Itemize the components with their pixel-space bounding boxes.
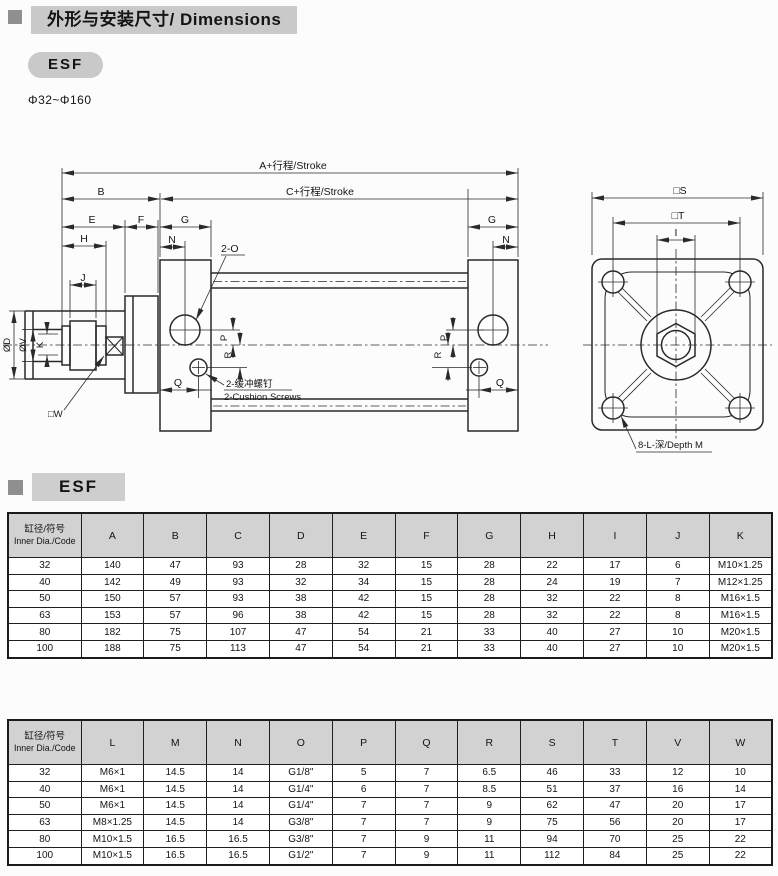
- dimension-cell: 10: [646, 640, 709, 657]
- dimension-cell: 20: [646, 798, 709, 815]
- dimension-cell: 33: [584, 765, 647, 782]
- table-row: 40M6×114.514G1/4"678.551371614: [8, 781, 772, 798]
- dimension-cell: 7: [332, 798, 395, 815]
- bore-code-cell: 100: [8, 847, 81, 864]
- column-header: G: [458, 513, 521, 558]
- dimension-cell: 62: [521, 798, 584, 815]
- dimension-cell: 7: [332, 831, 395, 848]
- dim-label-h: H: [80, 233, 88, 245]
- dimension-cell: M6×1: [81, 765, 144, 782]
- dim-label-b: B: [97, 186, 104, 198]
- mounting-flange: [125, 296, 158, 393]
- bore-code-header-en: Inner Dia./Code: [9, 743, 81, 754]
- dimension-cell: 93: [207, 558, 270, 575]
- column-header: C: [207, 513, 270, 558]
- technical-drawing: A+行程/Stroke C+行程/Stroke B E F G G H N N …: [0, 140, 778, 475]
- dim-label-phi-d: ØD: [2, 338, 13, 352]
- table-row: 3214047932832152822176M10×1.25: [8, 558, 772, 575]
- dimension-cell: 5: [332, 765, 395, 782]
- dimension-cell: 10: [709, 765, 772, 782]
- dimension-cell: 7: [332, 847, 395, 864]
- dimension-cell: 33: [458, 640, 521, 657]
- dimension-cell: M10×1.25: [709, 558, 772, 575]
- dimension-cell: 113: [207, 640, 270, 657]
- dimension-cell: 14: [207, 765, 270, 782]
- dimension-cell: 25: [646, 831, 709, 848]
- rod-collar: [70, 321, 96, 370]
- dimension-cell: 94: [521, 831, 584, 848]
- bore-code-cell: 40: [8, 574, 81, 591]
- dimension-cell: M10×1.5: [81, 847, 144, 864]
- dimension-cell: 47: [269, 640, 332, 657]
- dimension-cell: M20×1.5: [709, 640, 772, 657]
- dimension-cell: 6: [646, 558, 709, 575]
- dimension-cell: 27: [584, 640, 647, 657]
- dimension-cell: 11: [458, 831, 521, 848]
- dimension-cell: 46: [521, 765, 584, 782]
- dimension-cell: 84: [584, 847, 647, 864]
- dimension-cell: M16×1.5: [709, 607, 772, 624]
- dimension-cell: 9: [458, 798, 521, 815]
- dimension-cell: 42: [332, 591, 395, 608]
- table-row: 1001887511347542133402710M20×1.5: [8, 640, 772, 657]
- dimension-cell: 96: [207, 607, 270, 624]
- dimension-cell: M12×1.25: [709, 574, 772, 591]
- depth-note-label: 8-L-深/Depth M: [638, 440, 703, 451]
- dimension-cell: 32: [521, 607, 584, 624]
- table-header-row: 缸径/符号 Inner Dia./Code LMNOPQRSTVW: [8, 720, 772, 765]
- table-row: 6315357963842152832228M16×1.5: [8, 607, 772, 624]
- page-title: 外形与安装尺寸/ Dimensions: [31, 6, 297, 34]
- dimension-cell: 15: [395, 558, 458, 575]
- dimension-cell: 15: [395, 574, 458, 591]
- bore-code-cell: 80: [8, 624, 81, 641]
- bore-code-cell: 63: [8, 607, 81, 624]
- column-header: D: [269, 513, 332, 558]
- table-row: 801827510747542133402710M20×1.5: [8, 624, 772, 641]
- dim-label-f: F: [138, 214, 144, 226]
- dimension-cell: 150: [81, 591, 144, 608]
- series-badge: ESF: [28, 52, 103, 78]
- dimension-cell: 17: [584, 558, 647, 575]
- dimension-cell: 14.5: [144, 781, 207, 798]
- dim-label-phi-v: ØV: [18, 337, 29, 351]
- dimension-cell: 16.5: [207, 831, 270, 848]
- dimension-cell: M20×1.5: [709, 624, 772, 641]
- dimension-cell: 28: [458, 558, 521, 575]
- dim-label-q-left: Q: [174, 377, 182, 389]
- dimension-cell: 38: [269, 607, 332, 624]
- dimension-cell: 16.5: [207, 847, 270, 864]
- dimension-cell: G1/4": [269, 798, 332, 815]
- dim-label-i: I: [675, 227, 678, 239]
- column-header: R: [458, 720, 521, 765]
- dimension-cell: 22: [584, 591, 647, 608]
- dimension-cell: 14.5: [144, 765, 207, 782]
- dimension-cell: 14: [709, 781, 772, 798]
- dimension-cell: G1/2": [269, 847, 332, 864]
- cushion-label-zh: 2-缓冲螺钉: [226, 378, 273, 390]
- dim-label-p-left: P: [219, 335, 230, 341]
- dimension-cell: 75: [144, 640, 207, 657]
- dimension-cell: 21: [395, 640, 458, 657]
- dimension-cell: 7: [395, 798, 458, 815]
- dimension-cell: 182: [81, 624, 144, 641]
- column-header: S: [521, 720, 584, 765]
- dimension-cell: 14: [207, 798, 270, 815]
- dim-label-n-right: N: [502, 234, 510, 246]
- catalog-page: 外形与安装尺寸/ Dimensions ESF Φ32~Φ160: [0, 0, 778, 876]
- dimension-cell: 10: [646, 624, 709, 641]
- dimension-cell: 14.5: [144, 814, 207, 831]
- dimension-cell: 28: [269, 558, 332, 575]
- dimensions-table-l-w: 缸径/符号 Inner Dia./Code LMNOPQRSTVW 32M6×1…: [7, 719, 773, 866]
- dim-label-g-right: G: [488, 214, 496, 226]
- dimension-cell: 56: [584, 814, 647, 831]
- dimension-cell: 8: [646, 607, 709, 624]
- dimension-cell: 47: [584, 798, 647, 815]
- dimension-cell: 37: [584, 781, 647, 798]
- bore-code-header: 缸径/符号 Inner Dia./Code: [8, 513, 81, 558]
- dimension-cell: 17: [709, 814, 772, 831]
- bore-code-header-zh: 缸径/符号: [9, 524, 81, 536]
- dimension-cell: 11: [458, 847, 521, 864]
- dimension-cell: 34: [332, 574, 395, 591]
- dimension-cell: 6.5: [458, 765, 521, 782]
- dimension-cell: 28: [458, 607, 521, 624]
- dimension-cell: 54: [332, 640, 395, 657]
- dimension-cell: 17: [709, 798, 772, 815]
- dimension-cell: 93: [207, 591, 270, 608]
- dimension-cell: 14: [207, 781, 270, 798]
- side-view: A+行程/Stroke C+行程/Stroke B E F G G H N N …: [2, 159, 548, 431]
- dimension-cell: 20: [646, 814, 709, 831]
- table-row: 5015057933842152832228M16×1.5: [8, 591, 772, 608]
- column-header: E: [332, 513, 395, 558]
- dimension-cell: 7: [395, 781, 458, 798]
- section-bullet-icon: [8, 10, 22, 24]
- dimension-cell: 42: [332, 607, 395, 624]
- dimension-cell: 188: [81, 640, 144, 657]
- dimension-cell: 16: [646, 781, 709, 798]
- dimension-cell: 7: [332, 814, 395, 831]
- end-view: □S □T I 8-L-深/Depth M: [583, 185, 772, 452]
- dimension-cell: 8.5: [458, 781, 521, 798]
- dimension-cell: G3/8": [269, 814, 332, 831]
- dimension-cell: 93: [207, 574, 270, 591]
- dimension-cell: 47: [269, 624, 332, 641]
- dim-label-j: J: [80, 272, 85, 284]
- dimension-cell: 7: [395, 814, 458, 831]
- dimension-cell: 25: [646, 847, 709, 864]
- dim-label-g-left: G: [181, 214, 189, 226]
- dimension-cell: 9: [395, 831, 458, 848]
- bore-code-cell: 32: [8, 558, 81, 575]
- table-row: 50M6×114.514G1/4"77962472017: [8, 798, 772, 815]
- bore-code-cell: 50: [8, 591, 81, 608]
- bore-code-cell: 63: [8, 814, 81, 831]
- dim-label-a-stroke: A+行程/Stroke: [259, 159, 327, 172]
- dimension-cell: 16.5: [144, 831, 207, 848]
- dimension-cell: 12: [646, 765, 709, 782]
- dim-label-s: □S: [673, 185, 686, 197]
- table-row: 100M10×1.516.516.5G1/2"7911112842522: [8, 847, 772, 864]
- dimension-cell: 142: [81, 574, 144, 591]
- dimension-cell: 7: [395, 765, 458, 782]
- column-header: K: [709, 513, 772, 558]
- bore-code-cell: 32: [8, 765, 81, 782]
- dimension-cell: 49: [144, 574, 207, 591]
- bore-code-header-en: Inner Dia./Code: [9, 536, 81, 547]
- bore-range-label: Φ32~Φ160: [28, 93, 92, 107]
- dimension-cell: 33: [458, 624, 521, 641]
- dimension-cell: 32: [269, 574, 332, 591]
- dim-label-e: E: [88, 214, 95, 226]
- column-header: I: [584, 513, 647, 558]
- dimension-cell: 22: [709, 847, 772, 864]
- dimension-cell: 107: [207, 624, 270, 641]
- bore-code-header: 缸径/符号 Inner Dia./Code: [8, 720, 81, 765]
- section-bullet-icon: [8, 480, 23, 495]
- page-header: 外形与安装尺寸/ Dimensions: [8, 6, 297, 34]
- dimension-cell: 40: [521, 640, 584, 657]
- column-header: W: [709, 720, 772, 765]
- dimension-cell: 15: [395, 607, 458, 624]
- dimension-cell: 9: [395, 847, 458, 864]
- dimension-cell: M6×1: [81, 798, 144, 815]
- dim-label-r-right: R: [433, 351, 444, 358]
- dimension-cell: 14: [207, 814, 270, 831]
- table-row: 32M6×114.514G1/8"576.546331210: [8, 765, 772, 782]
- column-header: M: [144, 720, 207, 765]
- dimension-cell: 15: [395, 591, 458, 608]
- dimension-cell: G3/8": [269, 831, 332, 848]
- dimension-cell: 21: [395, 624, 458, 641]
- bore-code-cell: 100: [8, 640, 81, 657]
- dimension-cell: G1/4": [269, 781, 332, 798]
- dimensions-table-a-k: 缸径/符号 Inner Dia./Code ABCDEFGHIJK 321404…: [7, 512, 773, 659]
- dimension-cell: 57: [144, 591, 207, 608]
- table-header-row: 缸径/符号 Inner Dia./Code ABCDEFGHIJK: [8, 513, 772, 558]
- dimension-cell: 153: [81, 607, 144, 624]
- inner-contour: [605, 272, 750, 417]
- wrench-flat: [106, 337, 123, 355]
- dimension-cell: 32: [521, 591, 584, 608]
- column-header: B: [144, 513, 207, 558]
- dimension-cell: 38: [269, 591, 332, 608]
- dimension-cell: 8: [646, 591, 709, 608]
- bore-code-header-zh: 缸径/符号: [9, 731, 81, 743]
- dim-label-w: □W: [48, 409, 63, 420]
- dimension-cell: 57: [144, 607, 207, 624]
- dimension-cell: 9: [458, 814, 521, 831]
- dimension-cell: G1/8": [269, 765, 332, 782]
- dimension-cell: M16×1.5: [709, 591, 772, 608]
- dimension-cell: 40: [521, 624, 584, 641]
- dimension-cell: 22: [521, 558, 584, 575]
- column-header: H: [521, 513, 584, 558]
- column-header: T: [584, 720, 647, 765]
- column-header: F: [395, 513, 458, 558]
- dimension-cell: 19: [584, 574, 647, 591]
- dimension-cell: 32: [332, 558, 395, 575]
- dimension-cell: 140: [81, 558, 144, 575]
- dimension-cell: 47: [144, 558, 207, 575]
- table-row: 4014249933234152824197M12×1.25: [8, 574, 772, 591]
- dimension-cell: M6×1: [81, 781, 144, 798]
- cushion-label-en: 2-Cushion Screws: [224, 392, 301, 403]
- column-header: A: [81, 513, 144, 558]
- column-header: N: [207, 720, 270, 765]
- column-header: O: [269, 720, 332, 765]
- dimension-cell: 54: [332, 624, 395, 641]
- table-section-header: ESF: [8, 473, 125, 501]
- dimension-cell: 7: [646, 574, 709, 591]
- dim-label-q-right: Q: [496, 377, 504, 389]
- column-header: V: [646, 720, 709, 765]
- dimension-cell: 16.5: [144, 847, 207, 864]
- bore-code-cell: 50: [8, 798, 81, 815]
- dimension-cell: 14.5: [144, 798, 207, 815]
- dimension-cell: 22: [584, 607, 647, 624]
- dimension-cell: 24: [521, 574, 584, 591]
- dimension-cell: 28: [458, 574, 521, 591]
- dim-label-t: □T: [672, 210, 685, 222]
- dimension-cell: 70: [584, 831, 647, 848]
- table-row: 80M10×1.516.516.5G3/8"791194702522: [8, 831, 772, 848]
- column-header: J: [646, 513, 709, 558]
- dimension-cell: 75: [144, 624, 207, 641]
- ports-label: 2-O: [221, 243, 239, 255]
- dim-label-p-right: P: [439, 335, 450, 341]
- center-lines: [3, 282, 548, 407]
- column-header: L: [81, 720, 144, 765]
- column-header: Q: [395, 720, 458, 765]
- dimension-cell: M8×1.25: [81, 814, 144, 831]
- dimension-cell: 27: [584, 624, 647, 641]
- dimension-cell: 28: [458, 591, 521, 608]
- dim-label-r-left: R: [223, 351, 234, 358]
- bore-code-cell: 80: [8, 831, 81, 848]
- dimension-cell: 112: [521, 847, 584, 864]
- dimension-cell: 6: [332, 781, 395, 798]
- dim-label-k: K: [35, 341, 46, 348]
- dim-label-n-left: N: [168, 234, 176, 246]
- section-title: ESF: [32, 473, 125, 501]
- dimension-cell: 51: [521, 781, 584, 798]
- table-row: 63M8×1.2514.514G3/8"77975562017: [8, 814, 772, 831]
- bore-code-cell: 40: [8, 781, 81, 798]
- column-header: P: [332, 720, 395, 765]
- dimension-cell: 22: [709, 831, 772, 848]
- dim-label-c-stroke: C+行程/Stroke: [286, 185, 354, 198]
- dimension-cell: 75: [521, 814, 584, 831]
- dimension-cell: M10×1.5: [81, 831, 144, 848]
- rod-nut: [62, 326, 70, 365]
